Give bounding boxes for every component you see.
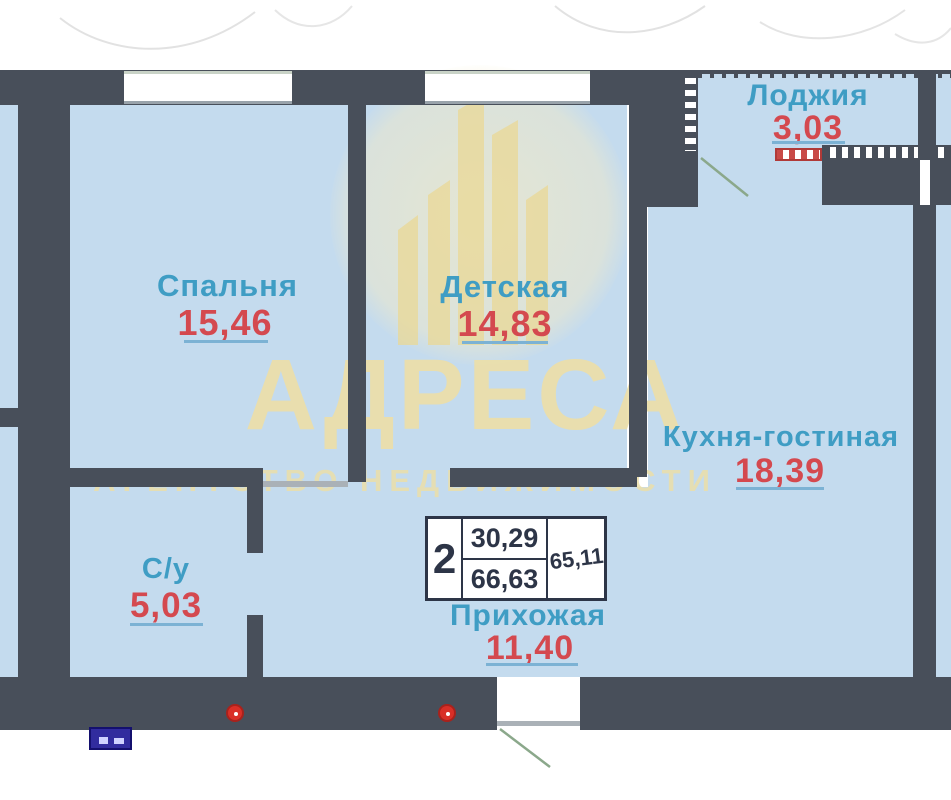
room-area-bedroom: 15,46 bbox=[140, 302, 310, 344]
room-name-kitchen: Кухня-гостиная bbox=[650, 421, 912, 454]
floor-plan: АДРЕСА АГЕНТСТВО НЕДВИЖИМОСТИ Спальня 15… bbox=[0, 0, 951, 800]
adjacent-room-floor-bottom bbox=[0, 427, 18, 677]
bedroom-door-threshold bbox=[263, 481, 348, 487]
riser-marker-dot-left bbox=[226, 704, 244, 722]
loggia-red-rail-segment bbox=[775, 148, 822, 161]
wall-bathroom-top bbox=[65, 468, 263, 487]
wall-left bbox=[18, 105, 70, 677]
underline-kitchen bbox=[736, 487, 824, 490]
room-area-children: 14,83 bbox=[420, 303, 590, 345]
room-name-children: Детская bbox=[400, 269, 610, 305]
wall-hallway-top bbox=[450, 468, 637, 487]
room-name-bedroom: Спальня bbox=[120, 268, 335, 304]
room-area-bathroom: 5,03 bbox=[96, 586, 236, 626]
room-area-kitchen: 18,39 bbox=[695, 452, 865, 491]
underline-bathroom bbox=[130, 623, 203, 626]
wall-below-loggia-right bbox=[930, 160, 951, 205]
panel-mark bbox=[114, 738, 124, 744]
wall-block-top-center bbox=[629, 105, 683, 207]
wall-pier-below-window bbox=[683, 153, 698, 207]
entrance-door-swing bbox=[500, 729, 550, 767]
apartment-info-stamp: 2 30,29 66,63 65,11 bbox=[425, 516, 607, 601]
wall-bathroom-right-upper bbox=[247, 487, 263, 553]
underline-hallway bbox=[486, 663, 578, 666]
room-name-bathroom: С/у bbox=[106, 553, 226, 586]
wall-left-stub bbox=[0, 408, 18, 427]
wall-kitchen-right bbox=[913, 205, 936, 680]
bedroom-window bbox=[124, 71, 292, 104]
children-window bbox=[425, 71, 590, 104]
underline-loggia bbox=[772, 141, 845, 144]
stamp-rooms-count: 2 bbox=[428, 519, 461, 598]
riser-marker-dot-right bbox=[438, 704, 456, 722]
balcony-side-window bbox=[683, 70, 698, 153]
stamp-area-top: 30,29 bbox=[463, 519, 546, 558]
entrance-threshold-line bbox=[497, 721, 580, 726]
room-name-loggia: Лоджия bbox=[723, 79, 893, 113]
wall-bottom bbox=[0, 677, 951, 730]
wall-bathroom-right-lower bbox=[247, 615, 263, 677]
electrical-panel-symbol bbox=[89, 727, 132, 750]
stamp-area-right: 65,11 bbox=[541, 516, 611, 602]
bathroom-door-opening bbox=[247, 553, 263, 615]
room-name-hallway: Прихожая bbox=[428, 599, 628, 633]
adjacent-loggia-window bbox=[930, 145, 951, 160]
wall-bedroom-children bbox=[348, 105, 366, 482]
wall-below-loggia bbox=[822, 160, 920, 205]
loggia-railing-ticks bbox=[698, 74, 951, 78]
underline-children bbox=[462, 341, 548, 344]
stamp-area-bottom: 66,63 bbox=[463, 560, 546, 598]
panel-mark bbox=[99, 737, 108, 744]
underline-bedroom bbox=[184, 340, 268, 343]
